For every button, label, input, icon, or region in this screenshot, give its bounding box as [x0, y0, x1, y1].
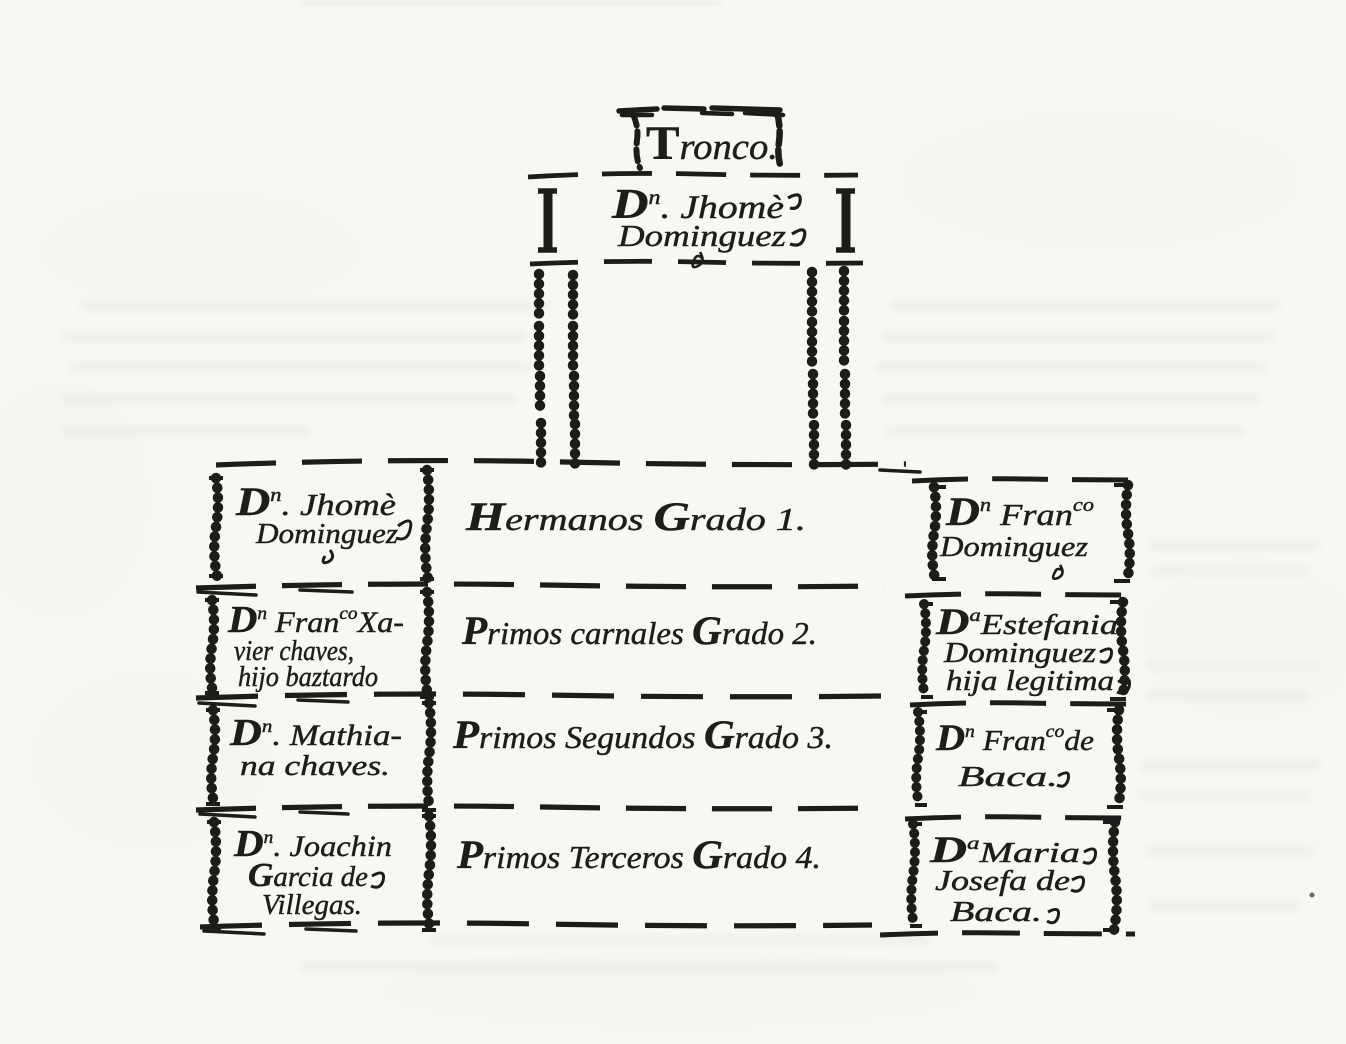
svg-text:Dn Francode: Dn Francode: [935, 718, 1094, 759]
svg-text:Villegas.: Villegas.: [262, 890, 362, 921]
svg-text:Garcia de: Garcia de: [248, 857, 368, 894]
svg-text:Dominguez: Dominguez: [255, 518, 398, 550]
svg-text:na chaves.: na chaves.: [240, 751, 390, 782]
svg-text:hijo baztardo: hijo baztardo: [238, 662, 378, 693]
svg-text:Primos Terceros Grado 4.: Primos Terceros Grado 4.: [456, 832, 821, 877]
svg-text:DaMaria: DaMaria: [929, 830, 1080, 871]
svg-text:Dn. Mathia-: Dn. Mathia-: [229, 712, 402, 754]
svg-text:Hermanos Grado 1.: Hermanos Grado 1.: [465, 494, 806, 539]
svg-text:Dn FrancoXa-: Dn FrancoXa-: [227, 599, 404, 641]
svg-text:Dominguez: Dominguez: [943, 638, 1096, 669]
svg-text:Primos carnales Grado 2.: Primos carnales Grado 2.: [461, 608, 817, 653]
svg-text:Dominguez: Dominguez: [939, 531, 1088, 563]
svg-text:Baca.: Baca.: [958, 762, 1058, 793]
svg-text:hija legitima: hija legitima: [946, 666, 1114, 697]
svg-text:DaEstefania: DaEstefania: [935, 602, 1118, 643]
svg-text:Dominguez: Dominguez: [617, 218, 786, 253]
svg-text:Baca.: Baca.: [950, 897, 1042, 928]
svg-text:Josefa de: Josefa de: [935, 866, 1070, 897]
svg-text:Primos Segundos Grado 3.: Primos Segundos Grado 3.: [452, 712, 833, 757]
